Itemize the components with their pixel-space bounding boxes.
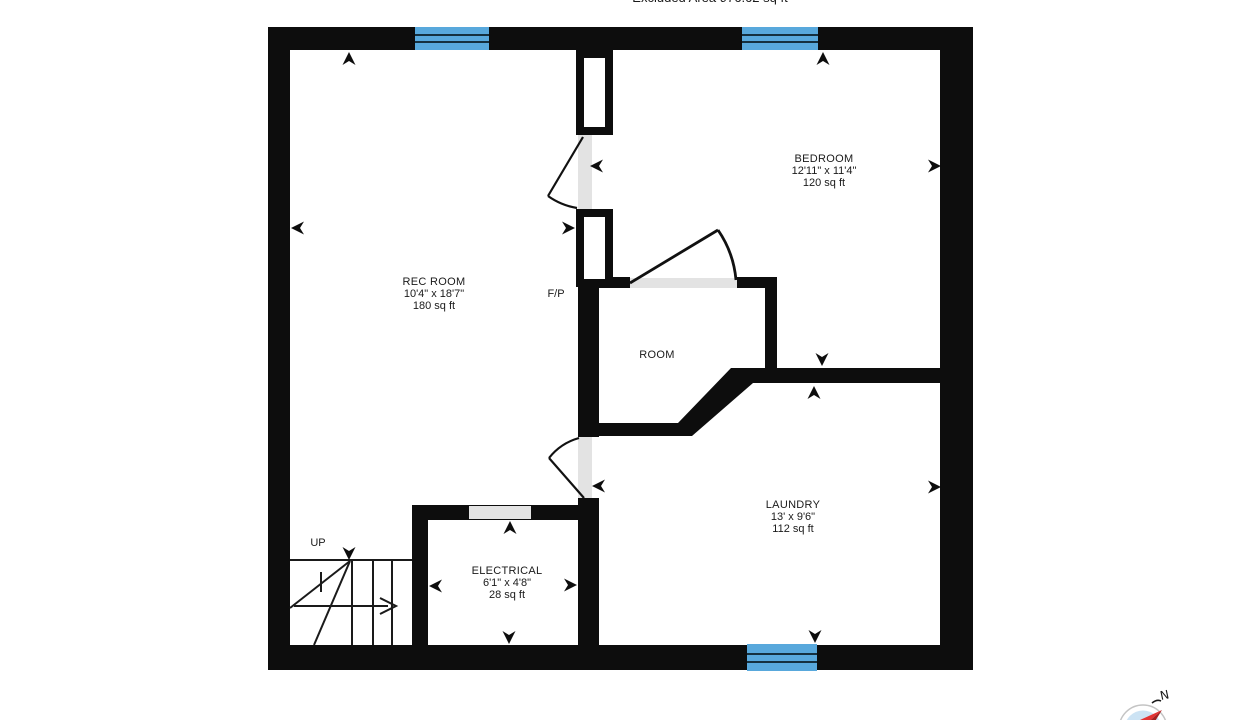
- flue-interior: [584, 58, 605, 127]
- room-area: 120 sq ft: [792, 177, 857, 189]
- door-opening: [630, 278, 737, 288]
- staircase: [290, 560, 412, 645]
- room-label-room: ROOM: [639, 349, 674, 361]
- window-pane-line: [742, 34, 818, 36]
- door-swing: [630, 230, 736, 283]
- window-pane-line: [747, 653, 817, 655]
- compass-icon: N: [1119, 687, 1170, 720]
- room-label-electrical: ELECTRICAL 6'1" x 4'8" 28 sq ft: [472, 565, 543, 601]
- compass-needle-icon: [1127, 710, 1162, 720]
- arrow-left-icon: [291, 222, 304, 235]
- arrow-up-icon: [817, 52, 830, 65]
- arrow-right-icon: [564, 579, 577, 592]
- room-label-laundry: LAUNDRY 13' x 9'6" 112 sq ft: [766, 499, 820, 535]
- wall-divider-mid: [578, 287, 599, 437]
- window-pane-line: [742, 41, 818, 43]
- wall-divider-lower: [578, 498, 599, 650]
- wall-room-right: [765, 277, 777, 368]
- room-name: BEDROOM: [792, 153, 857, 165]
- fireplace-box-icon: [576, 209, 613, 287]
- wall-outer-bottom: [268, 645, 973, 670]
- flue-interior: [584, 217, 605, 279]
- arrow-down-icon: [503, 631, 516, 644]
- door-opening: [578, 135, 592, 209]
- window-pane-line: [415, 41, 489, 43]
- room-dimensions: 10'4" x 18'7": [403, 288, 466, 300]
- stairs-up-label: UP: [310, 537, 325, 549]
- window-pane-line: [415, 34, 489, 36]
- wall-electrical-left: [412, 505, 428, 650]
- room-area: 112 sq ft: [766, 523, 820, 535]
- wall-outer-left: [268, 27, 290, 670]
- chimney-flue-icon: [576, 50, 613, 135]
- arrow-left-icon: [592, 480, 605, 493]
- stairs-direction-arrow-icon: [380, 598, 396, 614]
- window-pane-line: [747, 661, 817, 663]
- window-icon: [742, 27, 818, 50]
- room-name: ELECTRICAL: [472, 565, 543, 577]
- arrow-up-icon: [343, 52, 356, 65]
- arrow-right-icon: [562, 222, 575, 235]
- fireplace-label: F/P: [547, 288, 564, 300]
- arrow-up-icon: [808, 386, 821, 399]
- wall-bedroom-laundry: [737, 368, 973, 383]
- window-icon: [747, 644, 817, 671]
- room-area: 28 sq ft: [472, 589, 543, 601]
- room-area: 180 sq ft: [403, 300, 466, 312]
- compass-needle-icon: [1127, 710, 1162, 720]
- arrow-left-icon: [429, 580, 442, 593]
- room-name: LAUNDRY: [766, 499, 820, 511]
- wall-outer-top: [268, 27, 973, 50]
- arrow-down-icon: [343, 547, 356, 560]
- arrow-up-icon: [504, 521, 517, 534]
- cased-opening: [469, 506, 531, 519]
- room-name: ROOM: [639, 349, 674, 361]
- floorplan-canvas: Excluded Area 976.62 sq ft: [0, 0, 1240, 720]
- door-opening: [578, 437, 592, 498]
- room-label-bedroom: BEDROOM 12'11" x 11'4" 120 sq ft: [792, 153, 857, 189]
- wall-outer-right: [940, 27, 973, 670]
- room-name: REC ROOM: [403, 276, 466, 288]
- arrow-down-icon: [816, 353, 829, 366]
- room-dimensions: 12'11" x 11'4": [792, 165, 857, 177]
- wall-room-bottom: [578, 423, 688, 436]
- room-label-rec-room: REC ROOM 10'4" x 18'7" 180 sq ft: [403, 276, 466, 312]
- room-dimensions: 13' x 9'6": [766, 511, 820, 523]
- room-dimensions: 6'1" x 4'8": [472, 577, 543, 589]
- window-icon: [415, 27, 489, 50]
- arrow-down-icon: [809, 630, 822, 643]
- compass-north-label: N: [1159, 687, 1171, 703]
- excluded-area-label: Excluded Area 976.62 sq ft: [632, 0, 787, 4]
